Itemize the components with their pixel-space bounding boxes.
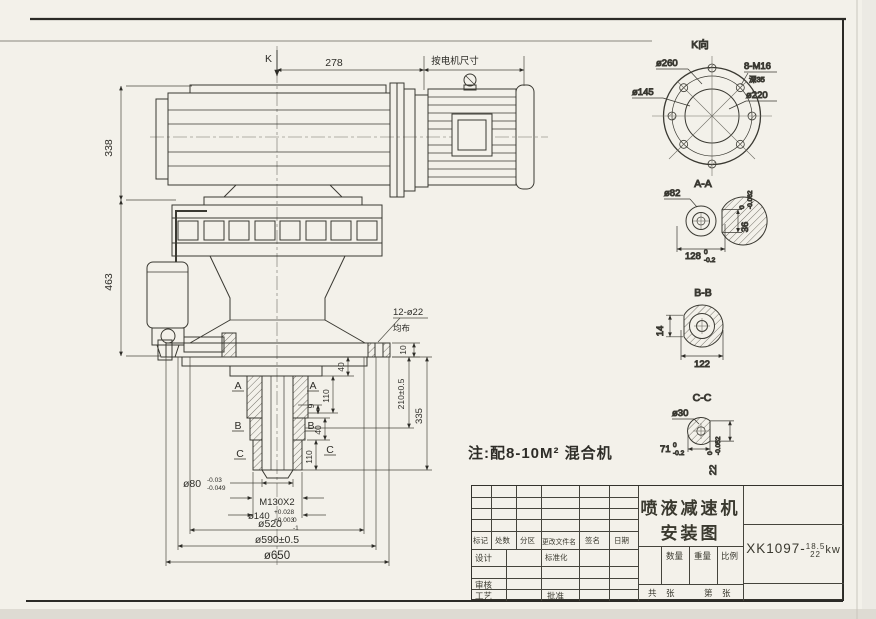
section-c-left: C [236, 448, 244, 460]
mixer-note: 注:配8-10M² 混合机 [468, 444, 613, 462]
view-aa-title: A-A [694, 178, 712, 190]
drawing-number-prefix: XK1097- [746, 541, 806, 556]
dim-m130: M130X2 [259, 497, 294, 508]
dim-motor-size: 按电机尺寸 [431, 55, 479, 67]
dim-d650: ø650 [264, 550, 290, 562]
view-aa-h-lo: -0.062 [747, 190, 754, 209]
tb-sheet2: 张 [722, 587, 731, 599]
tb-total: 共 [648, 587, 657, 599]
view-cc-h: 22 [708, 465, 719, 476]
tb-mark: 标记 [473, 535, 488, 546]
view-cc: C-C ø30 71 0 -0.2 22 0 -0.052 [660, 392, 734, 475]
section-c-right: C [326, 444, 334, 456]
view-aa-w-lo: -0.2 [704, 257, 716, 264]
dim-9: 9 [306, 403, 316, 408]
power-bottom: 22 [806, 551, 826, 559]
k-view-arrow-label: K [265, 53, 272, 65]
view-bb-key: 14 [655, 326, 666, 337]
view-k-d260: ø260 [656, 58, 678, 69]
view-k-title: K向 [691, 38, 709, 51]
dim-10: 10 [398, 345, 408, 355]
dim-463: 463 [103, 273, 115, 291]
view-aa-h: 36 [740, 222, 751, 233]
view-cc-w-lo: -0.2 [673, 450, 685, 457]
tb-weight: 重量 [694, 550, 711, 562]
drawing-sheet: K 278 按电机尺寸 338 463 12-ø22 均布 10 A A B B… [0, 0, 876, 619]
view-aa-h-up: 0 [739, 205, 746, 209]
view-cc-title: C-C [693, 392, 712, 404]
view-k: K向 ø260 ø145 8-M16 深35 ø220 [632, 38, 777, 176]
dim-110-bot: 110 [304, 450, 314, 464]
dim-338: 338 [103, 139, 115, 157]
drawing-number: XK1097-18.522kw [743, 541, 844, 559]
tb-process: 工艺 [475, 590, 492, 602]
section-a-right: A [309, 380, 316, 392]
dim-d520-tol-lo: -1 [293, 525, 299, 532]
tb-count: 处数 [495, 535, 510, 546]
view-aa-w-up: 0 [704, 249, 708, 256]
view-k-bolts: 8-M16 [744, 61, 771, 72]
product-title-line2: 安装图 [638, 519, 743, 544]
view-aa: A-A ø82 128 0 -0.2 36 0 -0.062 [664, 178, 767, 264]
dim-40-top: 40 [336, 362, 346, 372]
tb-sheets: 张 [666, 587, 675, 599]
tb-scale: 比例 [721, 550, 738, 562]
view-cc-h-up: 0 [707, 451, 714, 455]
tb-standardize: 标准化 [545, 552, 568, 563]
dim-d590: ø590±0.5 [255, 534, 299, 546]
view-cc-w: 71 [660, 444, 671, 455]
tb-design: 设计 [475, 552, 492, 564]
tb-approve: 批准 [547, 590, 564, 602]
tb-date: 日期 [614, 535, 629, 546]
holes-callout: 12-ø22 [393, 307, 423, 318]
view-k-d145: ø145 [632, 87, 654, 98]
dim-110-top: 110 [321, 389, 331, 403]
view-k-d220: ø220 [746, 90, 768, 101]
tb-signature: 签名 [585, 535, 600, 546]
dim-d80-tol-lo: -0.049 [207, 485, 226, 492]
dim-335: 335 [414, 408, 425, 424]
view-cc-h-lo: -0.052 [715, 436, 722, 455]
view-k-depth: 深35 [749, 75, 765, 84]
section-a-left: A [234, 380, 241, 392]
dim-d520: ø520 [258, 518, 282, 530]
tb-page: 第 [704, 587, 713, 599]
section-b-left: B [234, 420, 241, 432]
dim-d520-tol-up: 0 [293, 517, 297, 524]
holes-note: 均布 [393, 323, 410, 333]
dim-d80-tol-up: -0.03 [207, 477, 222, 484]
view-cc-d30: ø30 [672, 408, 688, 419]
tb-change-doc: 更改文件名 [542, 536, 576, 546]
view-aa-d82: ø82 [664, 188, 680, 199]
dim-d140-tol-up: +0.028 [274, 509, 294, 516]
power-unit: kw [825, 544, 840, 556]
view-cc-w-up: 0 [673, 442, 677, 449]
view-bb: B-B 14 122 [655, 287, 723, 370]
view-bb-title: B-B [694, 287, 712, 299]
dim-40-mid: 40 [313, 425, 323, 435]
title-block: 标记 处数 分区 更改文件名 签名 日期 设计 标准化 审核 工艺 批准 喷液减… [471, 485, 843, 600]
view-aa-w: 128 [685, 251, 701, 262]
product-title-line1: 喷液减速机 [638, 494, 743, 519]
dim-d80: ø80 [183, 478, 201, 490]
dim-278: 278 [325, 57, 343, 69]
tb-qty: 数量 [666, 550, 683, 562]
tb-zone: 分区 [520, 535, 535, 546]
dim-210: 210±0.5 [396, 378, 406, 409]
view-bb-w: 122 [694, 359, 710, 370]
